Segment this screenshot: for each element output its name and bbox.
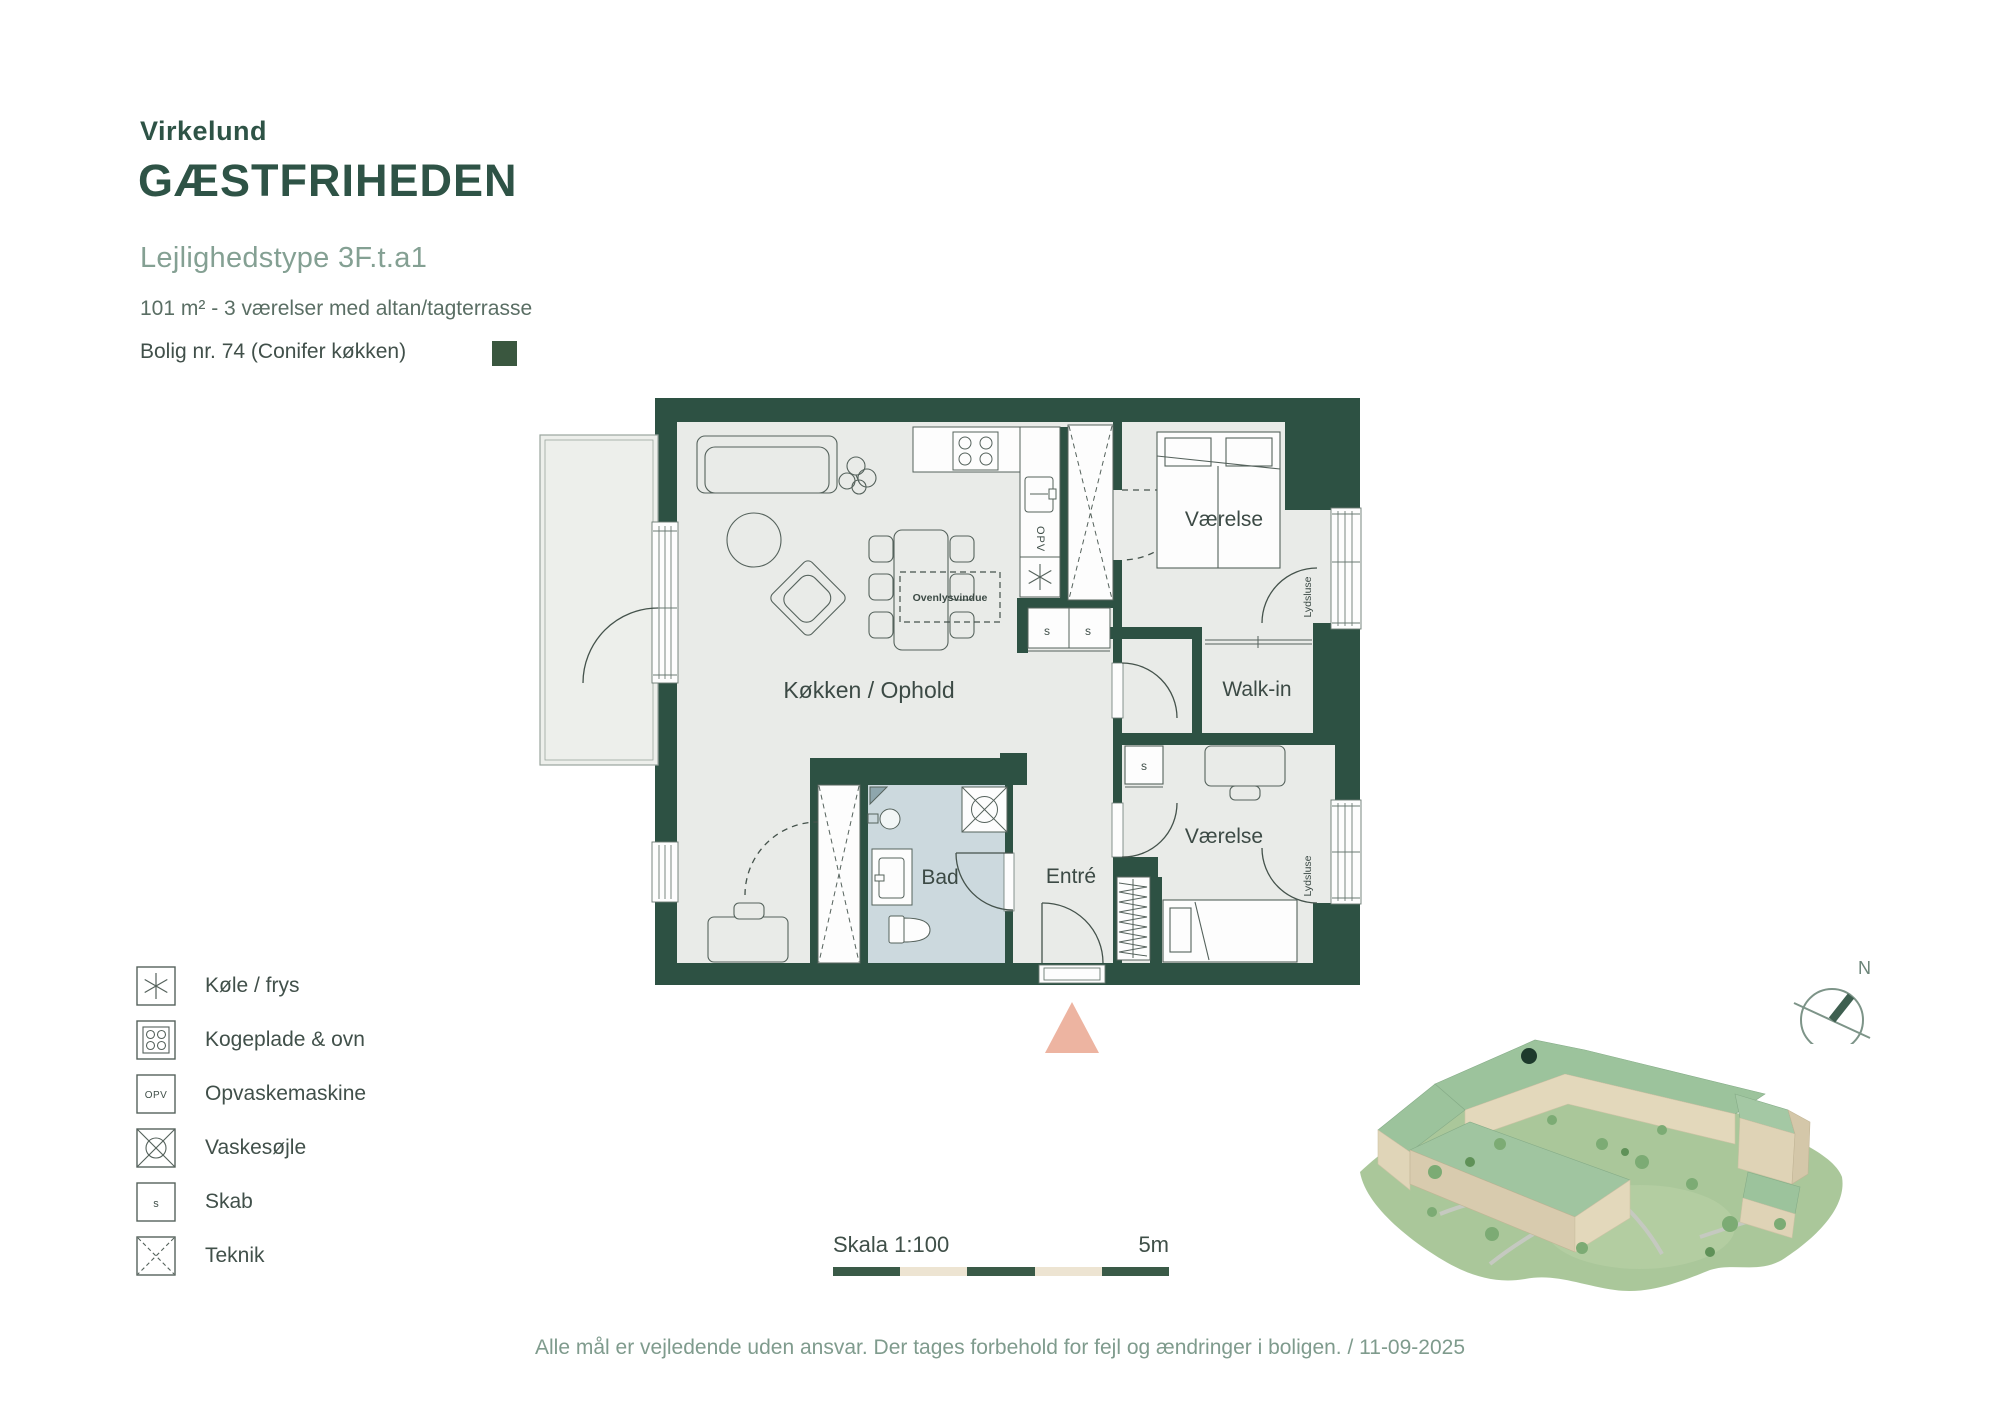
room-label-bath: Bad — [921, 866, 958, 889]
pillow — [1170, 908, 1191, 952]
fridge-freezer-icon — [136, 966, 176, 1006]
cabinet-s-label: s — [1141, 759, 1147, 773]
scale-segment — [833, 1267, 900, 1276]
pillow — [1165, 438, 1211, 466]
legend-label: Teknik — [205, 1244, 265, 1268]
legend-label: Vaskesøjle — [205, 1136, 306, 1160]
sink-bracket — [868, 814, 878, 823]
washer-column-icon — [136, 1128, 176, 1168]
dishwasher-label: OPV — [1034, 526, 1046, 552]
desk-living — [708, 917, 788, 962]
entrance-door-gap — [1039, 965, 1105, 983]
hall-cabinets — [1028, 608, 1110, 651]
lydsluse-label: Lydsluse — [1302, 576, 1314, 617]
brand-title: Virkelund — [140, 116, 267, 147]
legend-label: Kogeplade & ovn — [205, 1028, 365, 1052]
room-label-walkin: Walk-in — [1222, 678, 1291, 701]
room-label-entry: Entré — [1046, 865, 1096, 888]
apartment-type: Lejlighedstype 3F.t.a1 — [140, 242, 427, 275]
unit-location-marker — [1521, 1048, 1537, 1064]
floor-plan: OPV s s — [525, 390, 1385, 1070]
room-label-bedroom1: Værelse — [1185, 508, 1263, 531]
legend-item-dishwasher: OPV Opvaskemaskine — [136, 1074, 366, 1114]
balcony — [540, 435, 658, 765]
compass-north-label: N — [1858, 958, 1871, 978]
project-title: GÆSTFRIHEDEN — [138, 155, 518, 207]
compass-needle — [1832, 996, 1851, 1020]
scale-label: Skala 1:100 — [833, 1232, 949, 1258]
room-label-bedroom2: Værelse — [1185, 825, 1263, 848]
desk-bedroom2 — [1205, 746, 1285, 786]
scale-bar-block: Skala 1:100 5m — [833, 1232, 1169, 1276]
dishwasher-icon: OPV — [136, 1074, 176, 1114]
bedroom1-furniture — [1157, 432, 1280, 568]
legend: Køle / frys Kogeplade & ovn OPV Opvaskem… — [136, 966, 366, 1290]
floorplan-page: Virkelund GÆSTFRIHEDEN Lejlighedstype 3F… — [0, 0, 2000, 1413]
pillow — [1226, 438, 1272, 466]
entry-wardrobe — [1117, 877, 1150, 960]
sofa-seat — [705, 447, 829, 493]
legend-item-hob: Kogeplade & ovn — [136, 1020, 366, 1060]
skylight-label: Ovenlysvindue — [913, 592, 988, 604]
dining-table — [894, 530, 948, 650]
scale-segment — [967, 1267, 1034, 1276]
site-aerial-illustration — [1340, 1022, 1860, 1312]
unit-color-swatch — [492, 341, 517, 366]
legend-label: Opvaskemaskine — [205, 1082, 366, 1106]
disclaimer: Alle mål er vejledende uden ansvar. Der … — [0, 1336, 2000, 1360]
cabinet-icon: s — [136, 1182, 176, 1222]
legend-item-technical: Teknik — [136, 1236, 366, 1276]
cabinet-s-label: s — [1085, 624, 1091, 638]
sink — [880, 809, 900, 829]
legend-item-fridge: Køle / frys — [136, 966, 366, 1006]
balcony-door-window — [652, 522, 678, 683]
room-label-living: Køkken / Ophold — [783, 677, 954, 703]
washer-column — [962, 787, 1007, 832]
svg-text:OPV: OPV — [145, 1090, 168, 1101]
legend-item-cabinet: s Skab — [136, 1182, 366, 1222]
cabinet-s-label: s — [1044, 624, 1050, 638]
legend-item-washer: Vaskesøjle — [136, 1128, 366, 1168]
dining-set — [869, 530, 974, 650]
apartment-details: 101 m² - 3 værelser med altan/tagterrass… — [140, 297, 532, 321]
legend-label: Skab — [205, 1190, 253, 1214]
lydsluse-label: Lydsluse — [1302, 855, 1314, 896]
bedroom2-window — [1331, 800, 1361, 904]
living-window — [652, 842, 678, 902]
desk-chair-living — [734, 903, 764, 919]
bedroom1-window — [1331, 508, 1361, 629]
technical-icon — [136, 1236, 176, 1276]
scale-segment — [1035, 1267, 1102, 1276]
scale-segment — [1102, 1267, 1169, 1276]
unit-number: Bolig nr. 74 (Conifer køkken) — [140, 340, 406, 364]
hob-oven-icon — [136, 1020, 176, 1060]
legend-label: Køle / frys — [205, 974, 300, 998]
scale-distance: 5m — [1138, 1232, 1169, 1258]
entrance-marker — [1045, 1002, 1099, 1053]
scale-segment — [900, 1267, 967, 1276]
svg-text:s: s — [153, 1198, 159, 1210]
desk-chair-bedroom2 — [1230, 786, 1260, 800]
scale-bar — [833, 1267, 1169, 1276]
